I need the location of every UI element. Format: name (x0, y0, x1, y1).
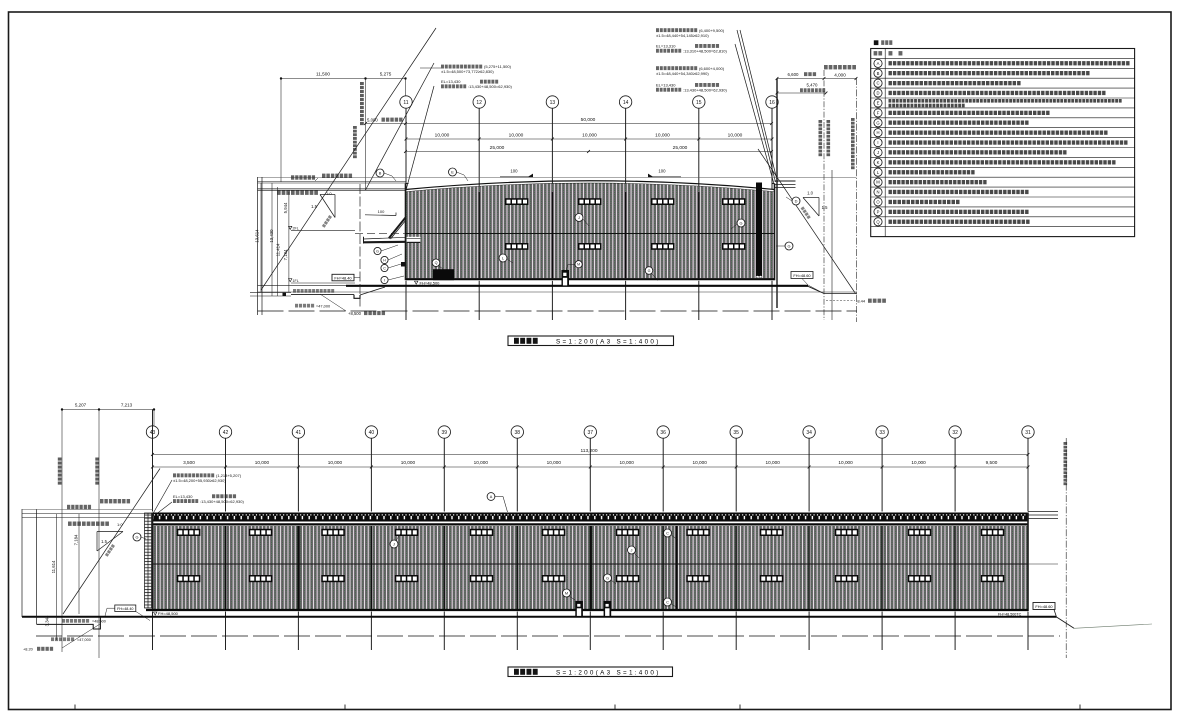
svg-text:FH=48.60: FH=48.60 (793, 273, 811, 278)
svg-text:25,000: 25,000 (490, 145, 505, 151)
svg-text:10,000: 10,000 (693, 460, 708, 465)
svg-text:K: K (877, 160, 880, 165)
svg-text:S=1:200(A3 S=1:400): S=1:200(A3 S=1:400) (556, 669, 661, 676)
svg-text:±1.5=48,500+73,772≥62,830): ±1.5=48,500+73,772≥62,830) (441, 69, 494, 74)
svg-text:FH=48,500: FH=48,500 (420, 280, 441, 285)
svg-text:12: 12 (476, 100, 482, 106)
svg-text:7,184: 7,184 (74, 534, 79, 545)
svg-text:13,430: 13,430 (269, 229, 274, 243)
svg-text:34: 34 (806, 430, 812, 436)
svg-text:100: 100 (510, 169, 518, 174)
svg-text:10,000: 10,000 (435, 133, 450, 139)
svg-text:FH=48.40: FH=48.40 (117, 607, 133, 611)
svg-text:G: G (739, 220, 742, 225)
svg-text:H: H (383, 258, 386, 262)
svg-text:16: 16 (769, 100, 775, 106)
svg-text:G: G (876, 120, 879, 125)
svg-text:10,000: 10,000 (766, 460, 781, 465)
svg-text:10,000: 10,000 (838, 460, 853, 465)
svg-text:P: P (877, 209, 880, 214)
svg-text:36: 36 (660, 430, 666, 436)
svg-text:13: 13 (550, 100, 556, 106)
svg-text:15: 15 (696, 100, 702, 106)
svg-text:=47,000: =47,000 (77, 638, 91, 642)
svg-text:G: G (376, 249, 379, 253)
svg-text:B: B (877, 71, 880, 76)
svg-text:+8,500: +8,500 (348, 311, 362, 316)
svg-text:A: A (877, 61, 880, 66)
svg-text:5,275: 5,275 (380, 72, 392, 77)
svg-text:4,000: 4,000 (834, 73, 846, 78)
svg-text:100: 100 (378, 209, 385, 214)
svg-text:11: 11 (403, 100, 408, 106)
svg-text:41: 41 (296, 430, 302, 436)
svg-text:43: 43 (150, 430, 156, 436)
svg-text:9,500: 9,500 (986, 460, 998, 465)
svg-text:-8.44: -8.44 (856, 299, 866, 304)
svg-text:10,000: 10,000 (474, 460, 489, 465)
svg-text:FH=48,500: FH=48,500 (158, 611, 179, 616)
svg-text:1.0: 1.0 (807, 191, 813, 196)
svg-text:1FL: 1FL (293, 279, 299, 283)
svg-text:M: M (876, 180, 880, 185)
svg-text:50,000: 50,000 (581, 117, 596, 123)
svg-text:5,000: 5,000 (367, 118, 378, 123)
svg-text:10,000: 10,000 (255, 460, 270, 465)
svg-text:7,184: 7,184 (283, 249, 288, 260)
svg-text:J: J (393, 541, 395, 546)
svg-text:1:0: 1:0 (326, 191, 332, 196)
svg-text:3,344: 3,344 (45, 615, 50, 626)
svg-text:10,000: 10,000 (509, 133, 524, 139)
svg-text:J: J (631, 547, 633, 552)
svg-text:A: A (490, 495, 493, 499)
svg-text:2FL: 2FL (293, 227, 299, 231)
svg-text:I: I (384, 278, 385, 282)
svg-text:G: G (135, 534, 138, 539)
svg-text:±1.5=48,200+55,930≥62,930): ±1.5=48,200+55,930≥62,930) (173, 478, 226, 483)
svg-text:42: 42 (223, 430, 229, 436)
svg-text:7,213: 7,213 (121, 403, 133, 408)
svg-text:E: E (877, 101, 880, 106)
svg-text:EL=13,430: EL=13,430 (656, 83, 676, 88)
svg-text:33: 33 (879, 430, 885, 436)
svg-text:FH=48.40: FH=48.40 (334, 276, 352, 281)
svg-text:J: J (877, 150, 879, 155)
svg-text:14: 14 (623, 100, 629, 106)
svg-text:EL=13,430: EL=13,430 (173, 494, 193, 499)
svg-text:1.5: 1.5 (311, 204, 317, 209)
svg-text:+8.20: +8.20 (23, 646, 34, 651)
svg-text:1.5: 1.5 (822, 205, 828, 210)
svg-text:±1.5=48,440+54,340≥62,990): ±1.5=48,440+54,340≥62,990) (656, 71, 709, 76)
svg-text:EL=13,430: EL=13,430 (441, 79, 461, 84)
svg-text:25,000: 25,000 (673, 145, 688, 151)
svg-text:11,500: 11,500 (316, 72, 330, 77)
svg-text:1:0: 1:0 (117, 522, 123, 527)
svg-text:10,000: 10,000 (911, 460, 926, 465)
svg-text:40: 40 (369, 430, 375, 436)
svg-text:37: 37 (588, 430, 594, 436)
svg-text::13,310+48,500=62,810): :13,310+48,500=62,810) (683, 49, 727, 54)
svg-text:5,207: 5,207 (75, 403, 87, 408)
svg-text:B: B (379, 170, 382, 175)
svg-text:D: D (795, 198, 798, 203)
svg-text:C: C (383, 266, 386, 270)
svg-text:10,000: 10,000 (620, 460, 635, 465)
svg-text:FH=48.60: FH=48.60 (1035, 604, 1053, 609)
svg-text:10,000: 10,000 (401, 460, 416, 465)
svg-text::13,430+48,500=62,930): :13,430+48,500=62,930) (468, 84, 512, 89)
svg-text:10,000: 10,000 (655, 133, 670, 139)
svg-text:39: 39 (442, 430, 448, 436)
svg-text:6,600: 6,600 (788, 72, 800, 77)
svg-text:31: 31 (1025, 430, 1031, 436)
svg-text:±1.5=48,440+54,145≥62,910): ±1.5=48,440+54,145≥62,910) (656, 33, 709, 38)
svg-text:D: D (876, 91, 879, 96)
svg-text:113,200: 113,200 (581, 448, 598, 454)
svg-text:G: G (648, 269, 651, 273)
svg-text:C: C (876, 81, 879, 86)
svg-text:32: 32 (952, 430, 958, 436)
svg-text:10,000: 10,000 (328, 460, 343, 465)
svg-text:35: 35 (733, 430, 739, 436)
svg-text:M: M (565, 590, 568, 595)
svg-text:J: J (578, 215, 580, 220)
svg-text:G: G (606, 575, 609, 580)
svg-text:=48,500: =48,500 (92, 620, 106, 624)
svg-text:H: H (876, 130, 879, 135)
svg-text:5,470: 5,470 (807, 83, 819, 88)
svg-text:11,614: 11,614 (51, 560, 56, 573)
svg-text:S=1:200(A3 S=1:400): S=1:200(A3 S=1:400) (556, 338, 661, 345)
svg-text:=47,000: =47,000 (316, 303, 331, 308)
svg-text:3,500: 3,500 (183, 460, 195, 465)
svg-text:N: N (876, 190, 879, 195)
svg-text:38: 38 (515, 430, 521, 436)
svg-text:11,414: 11,414 (276, 243, 281, 256)
svg-text:10,000: 10,000 (582, 133, 597, 139)
svg-text:1.5: 1.5 (101, 539, 107, 544)
svg-text:C: C (666, 530, 669, 535)
svg-text:13,614: 13,614 (255, 229, 260, 243)
svg-text:100: 100 (658, 169, 666, 174)
svg-text:E: E (451, 169, 454, 174)
svg-text:I: I (877, 140, 878, 145)
svg-text:Q: Q (435, 261, 438, 265)
svg-text:G: G (787, 243, 790, 248)
svg-text:10,000: 10,000 (728, 133, 743, 139)
svg-text:F: F (877, 110, 880, 115)
svg-text:5,944: 5,944 (283, 202, 288, 213)
svg-text:C: C (666, 599, 669, 604)
svg-text::13,430+48,500=62,930): :13,430+48,500=62,930) (200, 499, 244, 504)
svg-text:10,000: 10,000 (547, 460, 562, 465)
svg-text:FH=48.500TC: FH=48.500TC (998, 613, 1022, 617)
svg-text:EL=13,310: EL=13,310 (656, 44, 676, 49)
svg-text::13,430+48,500=62,930): :13,430+48,500=62,930) (683, 88, 727, 93)
svg-text:M: M (577, 263, 580, 267)
